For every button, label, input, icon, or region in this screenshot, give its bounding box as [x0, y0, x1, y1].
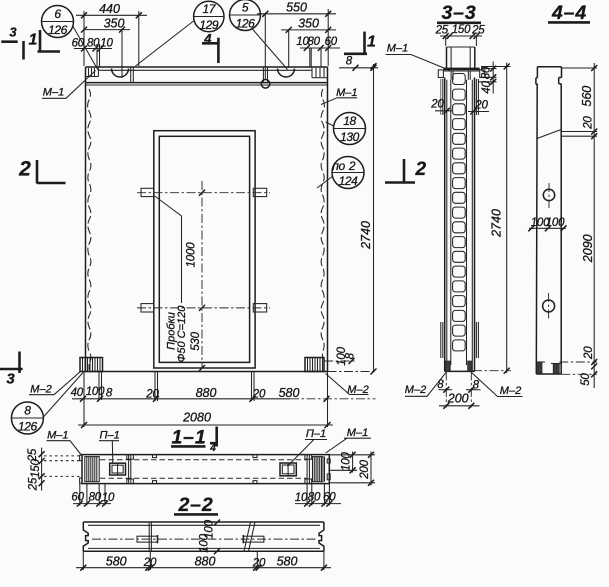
svg-text:П–1: П–1: [306, 428, 326, 440]
svg-text:25: 25: [27, 477, 39, 491]
svg-text:М–2: М–2: [347, 384, 368, 396]
svg-text:М–2: М–2: [500, 385, 521, 397]
svg-text:8: 8: [24, 404, 31, 418]
svg-text:580: 580: [106, 555, 127, 569]
svg-text:126: 126: [48, 23, 68, 37]
svg-text:10: 10: [102, 492, 115, 504]
svg-text:80: 80: [89, 492, 102, 504]
svg-text:100: 100: [546, 217, 565, 229]
svg-text:530: 530: [190, 331, 202, 350]
svg-text:2–2: 2–2: [178, 494, 214, 516]
svg-text:350: 350: [298, 16, 319, 30]
svg-text:4–4: 4–4: [551, 2, 587, 24]
svg-text:80: 80: [87, 38, 100, 50]
svg-text:880: 880: [196, 386, 217, 400]
svg-text:10: 10: [100, 38, 113, 50]
svg-text:М–1: М–1: [387, 43, 408, 55]
svg-text:М–1: М–1: [336, 87, 357, 99]
svg-text:80: 80: [481, 66, 493, 79]
svg-text:17: 17: [203, 2, 217, 16]
svg-text:129: 129: [199, 18, 219, 32]
svg-text:80: 80: [307, 36, 320, 48]
svg-text:П–1: П–1: [99, 430, 119, 442]
svg-text:350: 350: [104, 16, 125, 30]
svg-text:40: 40: [481, 81, 493, 94]
svg-text:М–2: М–2: [30, 384, 51, 396]
svg-text:100: 100: [204, 519, 216, 538]
svg-text:2090: 2090: [581, 234, 595, 263]
svg-text:580: 580: [277, 555, 298, 569]
svg-text:25: 25: [435, 24, 449, 36]
svg-text:60: 60: [71, 492, 84, 504]
svg-text:150: 150: [452, 24, 471, 36]
svg-text:40: 40: [71, 387, 84, 399]
svg-text:20: 20: [474, 100, 488, 112]
svg-text:100: 100: [86, 386, 105, 398]
svg-text:1: 1: [29, 32, 38, 49]
svg-text:2740: 2740: [359, 221, 373, 250]
svg-text:200: 200: [447, 392, 469, 406]
svg-text:8: 8: [344, 352, 356, 359]
svg-text:М–2: М–2: [405, 384, 426, 396]
svg-text:1: 1: [367, 34, 376, 51]
svg-text:3: 3: [9, 25, 17, 40]
svg-text:6: 6: [54, 7, 61, 21]
svg-text:8: 8: [346, 55, 353, 67]
svg-text:60: 60: [325, 36, 338, 48]
svg-text:550: 550: [286, 0, 307, 14]
svg-text:8: 8: [437, 379, 444, 391]
svg-text:150: 150: [30, 459, 42, 478]
svg-text:80: 80: [308, 492, 321, 504]
svg-text:2740: 2740: [490, 209, 504, 238]
svg-text:560: 560: [580, 86, 594, 107]
svg-text:2: 2: [415, 159, 427, 180]
svg-text:5: 5: [242, 1, 249, 15]
svg-text:126: 126: [18, 420, 38, 434]
svg-text:20: 20: [145, 389, 159, 401]
svg-text:20: 20: [430, 98, 444, 110]
svg-text:10: 10: [295, 492, 308, 504]
svg-text:20: 20: [583, 346, 595, 360]
svg-text:20: 20: [582, 116, 594, 130]
svg-text:880: 880: [195, 555, 216, 569]
svg-text:М–1: М–1: [43, 87, 64, 99]
svg-text:130: 130: [340, 130, 360, 144]
svg-text:8: 8: [106, 387, 113, 399]
svg-text:440: 440: [99, 2, 120, 16]
svg-text:124: 124: [339, 174, 359, 188]
svg-text:по: по: [332, 159, 345, 173]
svg-text:М–1: М–1: [47, 430, 68, 442]
svg-text:50: 50: [580, 373, 592, 386]
svg-text:25: 25: [471, 24, 485, 36]
svg-text:200: 200: [359, 459, 371, 479]
svg-text:2: 2: [18, 158, 31, 181]
svg-text:18: 18: [343, 114, 356, 128]
svg-text:2080: 2080: [182, 411, 211, 425]
svg-text:4: 4: [209, 443, 216, 454]
svg-text:580: 580: [279, 386, 300, 400]
svg-text:100: 100: [340, 452, 352, 471]
svg-text:60: 60: [323, 492, 336, 504]
svg-text:1000: 1000: [186, 242, 198, 268]
svg-text:2: 2: [348, 159, 356, 173]
svg-text:3: 3: [6, 371, 15, 388]
svg-text:20: 20: [252, 557, 266, 569]
svg-text:Ф50 С=120: Ф50 С=120: [176, 305, 188, 363]
svg-text:20: 20: [252, 389, 266, 401]
svg-text:3–3: 3–3: [442, 2, 477, 24]
svg-text:М–1: М–1: [347, 427, 368, 439]
svg-text:20: 20: [143, 557, 157, 569]
